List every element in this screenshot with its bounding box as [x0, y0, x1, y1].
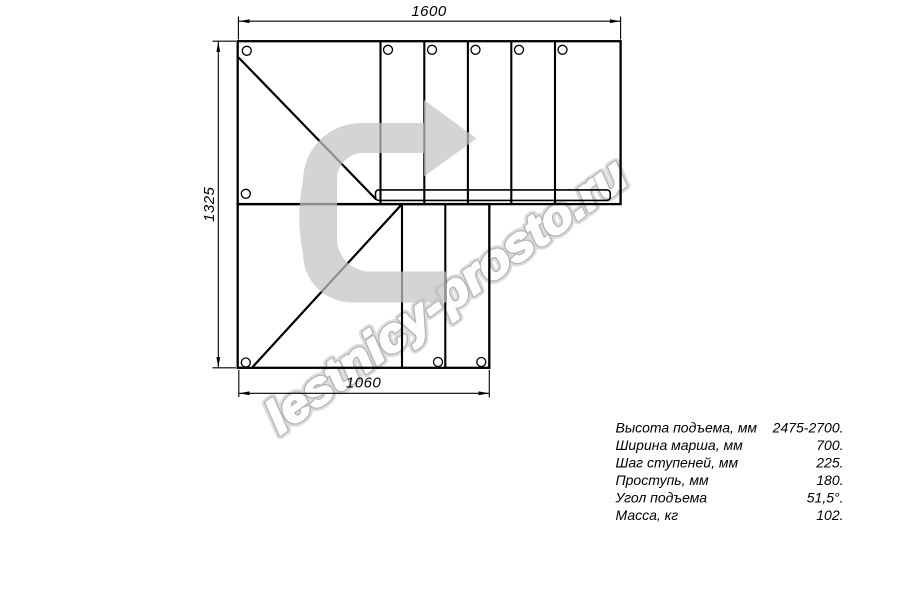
- svg-text:1600: 1600: [411, 3, 447, 20]
- svg-text:1060: 1060: [346, 374, 382, 391]
- svg-text:180.: 180.: [816, 472, 843, 488]
- svg-text:Масса, кг: Масса, кг: [616, 507, 679, 523]
- svg-text:Шаг ступеней, мм: Шаг ступеней, мм: [616, 455, 739, 471]
- svg-text:225.: 225.: [815, 455, 843, 471]
- svg-text:Высота подъема, мм: Высота подъема, мм: [616, 420, 758, 436]
- svg-text:2475-2700.: 2475-2700.: [772, 420, 844, 436]
- svg-text:Угол подъема: Угол подъема: [615, 490, 708, 506]
- svg-text:1325: 1325: [201, 186, 218, 222]
- svg-text:Ширина марша, мм: Ширина марша, мм: [616, 437, 744, 453]
- svg-text:700.: 700.: [816, 437, 843, 453]
- svg-text:102.: 102.: [816, 507, 843, 523]
- svg-text:51,5°.: 51,5°.: [807, 490, 844, 506]
- svg-text:Проступь, мм: Проступь, мм: [616, 472, 710, 488]
